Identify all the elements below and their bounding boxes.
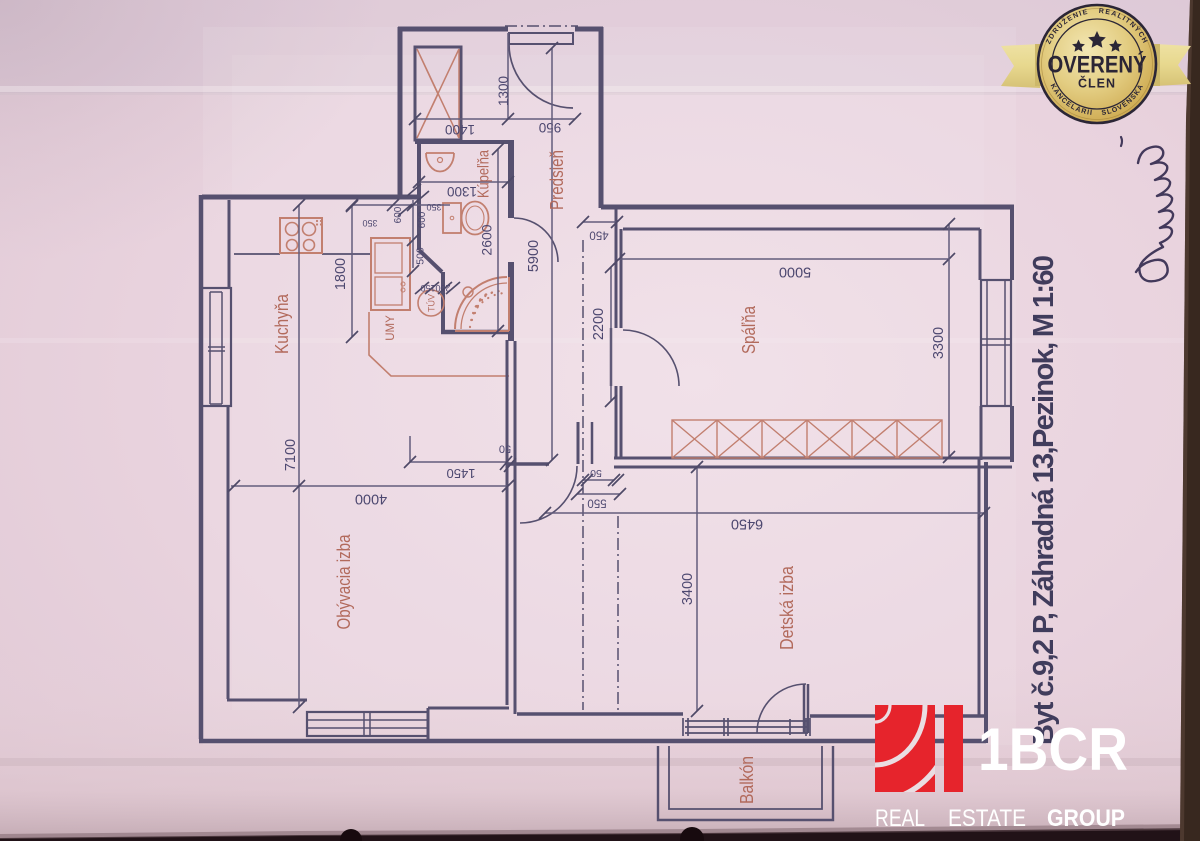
svg-text:ČLEN: ČLEN xyxy=(1078,76,1116,91)
svg-text:6450: 6450 xyxy=(731,516,763,532)
svg-text:Predsieň: Predsieň xyxy=(547,150,567,210)
svg-text:1800: 1800 xyxy=(333,258,349,290)
svg-text:1300: 1300 xyxy=(447,184,477,199)
svg-text:Kuchyňa: Kuchyňa xyxy=(272,293,292,354)
svg-text:UMY: UMY xyxy=(385,315,397,341)
svg-text:2200: 2200 xyxy=(591,308,607,340)
svg-text:3300: 3300 xyxy=(931,327,947,359)
svg-text:Byt č.9,2 P, Záhradná 13,Pezin: Byt č.9,2 P, Záhradná 13,Pezinok, M 1:60 xyxy=(1028,255,1060,745)
svg-text:ESTATE: ESTATE xyxy=(948,805,1026,832)
svg-text:Spáľňa: Spáľňa xyxy=(739,305,759,354)
svg-text:Obývacia izba: Obývacia izba xyxy=(334,534,354,630)
svg-text:4000: 4000 xyxy=(355,491,387,507)
svg-text:5000: 5000 xyxy=(779,264,811,280)
svg-text:50: 50 xyxy=(590,467,602,479)
svg-text:7100: 7100 xyxy=(283,439,299,471)
svg-text:Detská izba: Detská izba xyxy=(777,565,797,650)
svg-text:950: 950 xyxy=(539,120,562,135)
svg-text:1BCR: 1BCR xyxy=(978,716,1128,783)
svg-text:TÚV: TÚV xyxy=(427,294,437,312)
svg-text:5900: 5900 xyxy=(526,240,542,272)
svg-text:OVERENÝ: OVERENÝ xyxy=(1048,51,1147,79)
svg-text:1300: 1300 xyxy=(496,76,511,106)
svg-text:600: 600 xyxy=(393,206,404,223)
svg-text:150: 150 xyxy=(420,283,435,293)
svg-text:200: 200 xyxy=(435,283,450,293)
svg-text:50: 50 xyxy=(499,443,511,455)
svg-text:450: 450 xyxy=(589,229,608,241)
svg-text:3400: 3400 xyxy=(680,573,696,605)
svg-text:1450: 1450 xyxy=(447,466,476,481)
svg-text:1400: 1400 xyxy=(445,122,475,137)
svg-text:550: 550 xyxy=(587,497,606,509)
svg-text:REAL: REAL xyxy=(875,805,925,832)
svg-text:600: 600 xyxy=(417,211,428,228)
svg-text:Kúpeľňa: Kúpeľňa xyxy=(476,150,493,198)
svg-text:350: 350 xyxy=(362,218,377,228)
svg-text:500: 500 xyxy=(415,247,427,265)
svg-text:2600: 2600 xyxy=(479,224,495,255)
svg-text:Balkón: Balkón xyxy=(737,756,757,804)
svg-text:350: 350 xyxy=(426,202,441,212)
svg-text:GROUP: GROUP xyxy=(1047,805,1125,832)
